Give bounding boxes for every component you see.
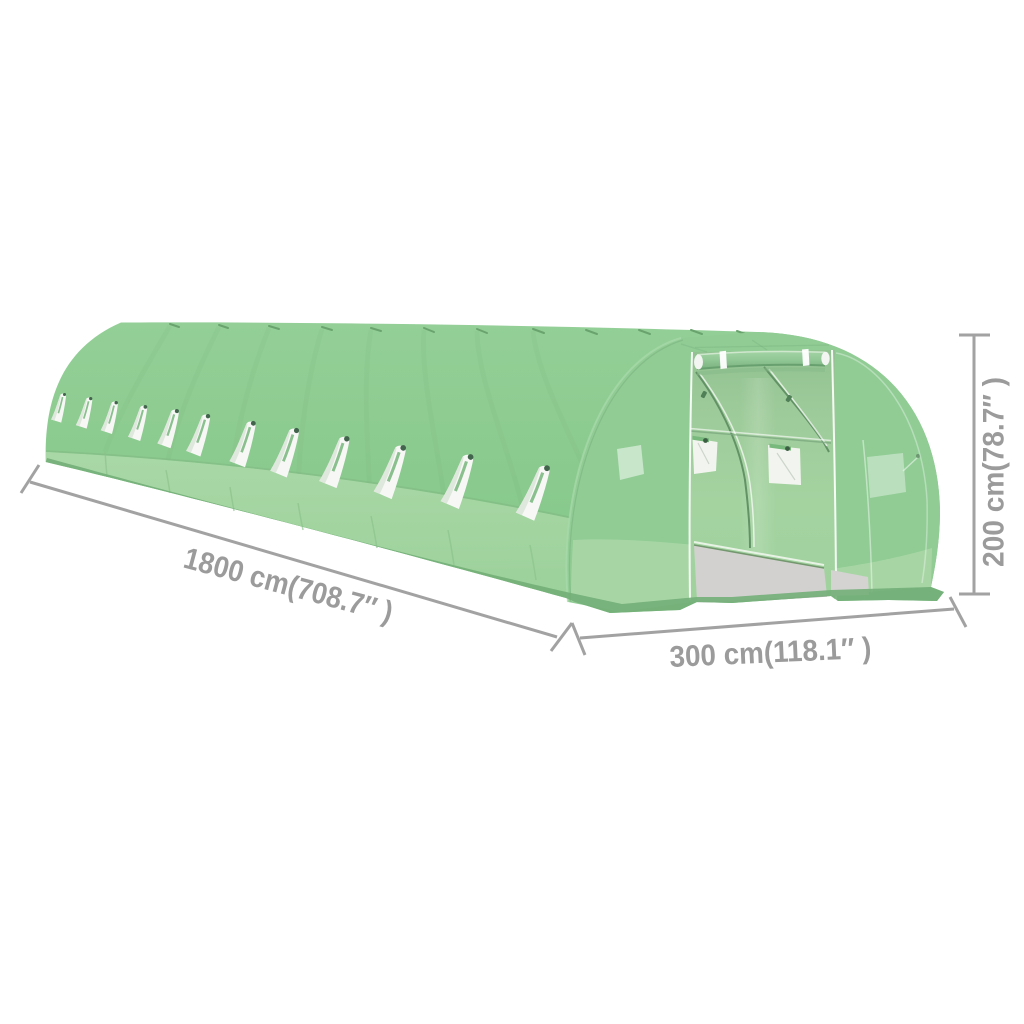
svg-text:200 cm(78.7″ ): 200 cm(78.7″ ) [978,377,1011,567]
